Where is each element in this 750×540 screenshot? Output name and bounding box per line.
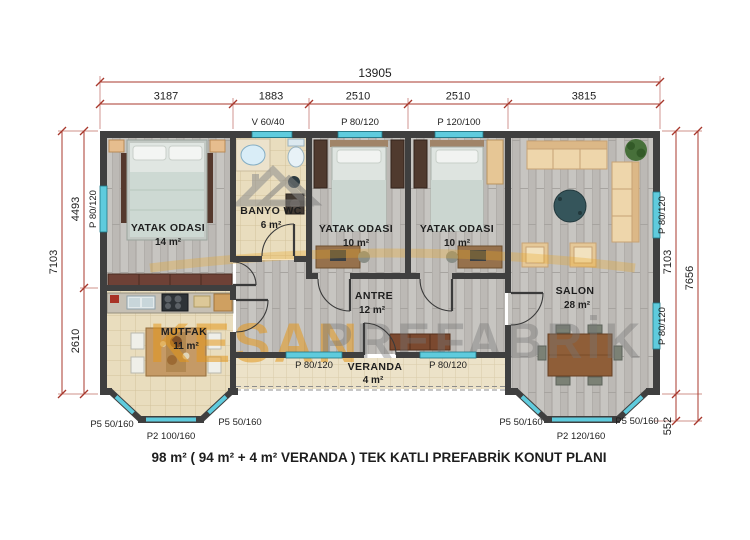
window-label: P 80/120 — [295, 360, 333, 371]
room-name-antre: ANTRE — [355, 290, 393, 302]
cabinet-icon — [214, 294, 232, 311]
sink-basin — [142, 298, 153, 307]
dining-chair-icon — [588, 377, 602, 385]
wardrobe-icon — [414, 140, 427, 188]
pillow-icon — [169, 146, 202, 160]
dim-left-bottom: 2610 — [70, 329, 82, 353]
window — [435, 132, 483, 138]
room-area-bedroom3: 10 m² — [444, 238, 471, 249]
dim-left-top: 4493 — [70, 197, 82, 221]
dim-right-bay: 552 — [662, 417, 674, 435]
nightstand-icon — [210, 140, 225, 152]
pillow-icon — [436, 150, 478, 163]
wall-bath-bottom — [230, 256, 262, 262]
wall-veranda — [396, 352, 420, 358]
room-name-bedroom3: YATAK ODASI — [420, 223, 494, 235]
dim-left-total: 7103 — [48, 250, 60, 274]
chair-icon — [131, 333, 144, 349]
window-label: P 80/120 — [429, 360, 467, 371]
burner — [165, 303, 171, 309]
wall-right — [653, 131, 660, 394]
room-area-bedroom2: 10 m² — [343, 238, 370, 249]
wall-veranda — [476, 352, 508, 358]
floor-plan-svg: KESAN PREFABRİK — [0, 0, 750, 540]
wall-bed1-bath — [230, 131, 236, 262]
window-label: P 80/120 — [88, 190, 99, 228]
room-area-veranda: 4 m² — [363, 375, 384, 386]
wall-salon-left — [505, 131, 511, 293]
wall-bed1-bottom — [100, 285, 236, 291]
window — [286, 352, 342, 358]
dim-seg1: 3187 — [154, 91, 178, 103]
window-label: P2 120/160 — [557, 431, 606, 442]
plant-leaf — [627, 142, 635, 150]
window — [338, 132, 382, 138]
wall-bed2-bed3 — [405, 131, 411, 279]
room-name-bathroom: BANYO WC — [240, 205, 302, 217]
sink-basin — [129, 298, 140, 307]
headboard — [430, 140, 484, 147]
chair-icon — [131, 357, 144, 373]
coffee-table-icon — [554, 190, 586, 222]
dim-seg5: 3815 — [572, 91, 596, 103]
sofa-back — [527, 141, 607, 149]
room-area-kitchen: 11 m² — [173, 341, 199, 352]
room-name-kitchen: MUTFAK — [161, 326, 207, 338]
counter-item — [194, 296, 210, 307]
room-area-antre: 12 m² — [359, 305, 386, 316]
window-label: P5 50/160 — [90, 419, 133, 430]
wall-veranda — [236, 352, 286, 358]
chimney — [252, 174, 259, 188]
room-name-salon: SALON — [556, 285, 595, 297]
vent-label: V 60/40 — [252, 117, 285, 128]
window-label: P 120/100 — [437, 117, 480, 128]
window-label: P 80/120 — [657, 196, 668, 234]
pillow-icon — [133, 146, 166, 160]
room-area-salon: 28 m² — [564, 300, 591, 311]
counter-item — [110, 295, 119, 303]
window — [252, 132, 292, 138]
burner — [175, 303, 181, 309]
bed-rail-icon — [207, 153, 213, 223]
plant-leaf — [637, 149, 646, 158]
dim-seg4: 2510 — [446, 91, 470, 103]
floor-plan-canvas: KESAN PREFABRİK — [0, 0, 750, 540]
wall-bed3-bottom — [452, 273, 511, 279]
wall-bed3-bottom — [411, 273, 420, 279]
dim-seg2: 1883 — [259, 91, 283, 103]
window-label: P2 100/160 — [147, 431, 196, 442]
room-name-bedroom2: YATAK ODASI — [319, 223, 393, 235]
window — [420, 352, 476, 358]
table-detail — [558, 197, 562, 201]
sink-icon — [241, 145, 265, 165]
window-label: P5 50/160 — [499, 417, 542, 428]
dim-right-inner: 7103 — [662, 250, 674, 274]
sofa-icon — [612, 162, 632, 242]
dim-right-total: 7656 — [684, 266, 696, 290]
room-area-bedroom1: 14 m² — [155, 237, 182, 248]
window-label: P5 50/160 — [615, 416, 658, 427]
wall-left — [100, 131, 107, 394]
bed-rail-icon — [121, 153, 127, 223]
plan-caption: 98 m² ( 94 m² + 4 m² VERANDA ) TEK KATLI… — [152, 450, 607, 465]
window — [100, 186, 107, 232]
wardrobe-icon — [391, 140, 404, 188]
wall-bath-bottom — [294, 256, 308, 262]
wall-kitchen-right — [230, 332, 236, 388]
room-name-veranda: VERANDA — [348, 361, 403, 373]
cabinet-icon — [487, 140, 503, 184]
burner — [165, 296, 172, 303]
toilet-icon — [288, 147, 304, 167]
wall-salon-left — [505, 325, 511, 394]
wardrobe-icon — [314, 140, 327, 188]
sofa-back — [632, 162, 639, 242]
window-label: P 80/120 — [341, 117, 379, 128]
wall-bath-bed2 — [306, 131, 312, 279]
wall-bed2-bottom — [306, 273, 318, 279]
pillow-icon — [337, 150, 381, 163]
headboard — [330, 140, 388, 147]
nightstand-icon — [109, 140, 124, 152]
dim-seg3: 2510 — [346, 91, 370, 103]
dim-total-width: 13905 — [358, 66, 392, 80]
room-area-bathroom: 6 m² — [261, 220, 282, 231]
room-name-bedroom1: YATAK ODASI — [131, 222, 205, 234]
wall-bed2-bottom — [350, 273, 411, 279]
toilet-tank — [288, 139, 304, 146]
sofa-icon — [527, 149, 607, 169]
table-detail — [578, 211, 582, 215]
burner — [175, 296, 182, 303]
wall-veranda — [342, 352, 364, 358]
dining-chair-icon — [556, 377, 570, 385]
window-label: P5 50/160 — [218, 417, 261, 428]
window-label: P 80/120 — [657, 307, 668, 345]
